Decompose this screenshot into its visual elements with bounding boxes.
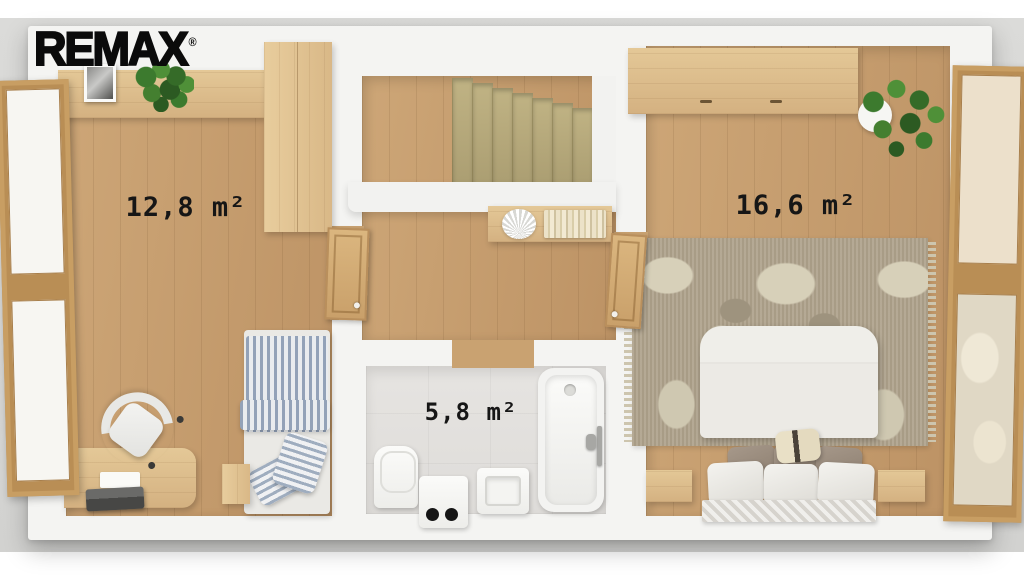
potted-plant	[855, 76, 947, 162]
book-row	[544, 210, 606, 238]
door-handle	[611, 311, 617, 317]
floor-plan-render: REMAX® 12,8 m² 5,8 m² 16,6 m²	[0, 0, 1024, 576]
registered-mark: ®	[189, 36, 197, 49]
shower-bar	[597, 426, 602, 466]
toilet-seat	[380, 451, 416, 493]
area-label-bedroom-left: 12,8 m²	[86, 192, 286, 223]
wardrobe-handle	[770, 100, 782, 103]
washer-knob	[426, 508, 439, 521]
toilet	[374, 446, 418, 508]
bed-runner	[702, 500, 876, 522]
stair-side-wall	[592, 76, 616, 184]
bed-pillow	[707, 461, 765, 506]
door-right-room	[605, 233, 647, 329]
stair-tread	[452, 78, 473, 184]
bathroom-sink	[477, 468, 529, 514]
wardrobe-handle	[700, 100, 712, 103]
accent-pillow	[774, 428, 821, 464]
stair-tread	[532, 98, 553, 184]
remax-logo: REMAX®	[34, 25, 197, 72]
bathtub	[538, 368, 604, 512]
stair-tread	[512, 93, 533, 184]
bathtub-drain	[564, 384, 576, 396]
stair-tread	[492, 88, 513, 184]
window-left	[0, 79, 79, 497]
hallway-shelf	[488, 206, 612, 242]
window-pane	[11, 299, 70, 481]
window-pane	[958, 74, 1022, 265]
bed-left-blanket-fold	[240, 400, 330, 430]
door-left-room	[324, 227, 369, 320]
stair-tread	[572, 108, 593, 184]
window-right	[943, 65, 1024, 523]
area-label-bathroom: 5,8 m²	[381, 398, 561, 426]
staircase	[452, 76, 592, 184]
stair-tread	[552, 103, 573, 184]
bedside-stool	[222, 464, 250, 504]
doorway-bathroom	[452, 340, 534, 368]
laptop	[85, 486, 144, 511]
window-pane	[953, 293, 1017, 506]
window-pane	[6, 88, 65, 274]
sink-basin	[485, 476, 521, 506]
area-label-bedroom-right: 16,6 m²	[696, 190, 896, 221]
wardrobe-seam	[297, 42, 298, 232]
bed-right-duvet	[700, 326, 878, 438]
fan-decor	[502, 209, 536, 239]
chair-armrest	[175, 415, 185, 425]
washer-knob	[445, 508, 458, 521]
remax-logo-text: REMAX	[34, 22, 187, 76]
shower-head	[586, 434, 596, 450]
nightstand-right	[878, 470, 925, 502]
nightstand-left	[646, 470, 692, 502]
door-handle	[354, 302, 360, 308]
desk-paper	[100, 472, 140, 488]
washing-machine	[419, 476, 468, 528]
stair-tread	[472, 83, 493, 184]
wardrobe-right-room	[628, 48, 858, 114]
